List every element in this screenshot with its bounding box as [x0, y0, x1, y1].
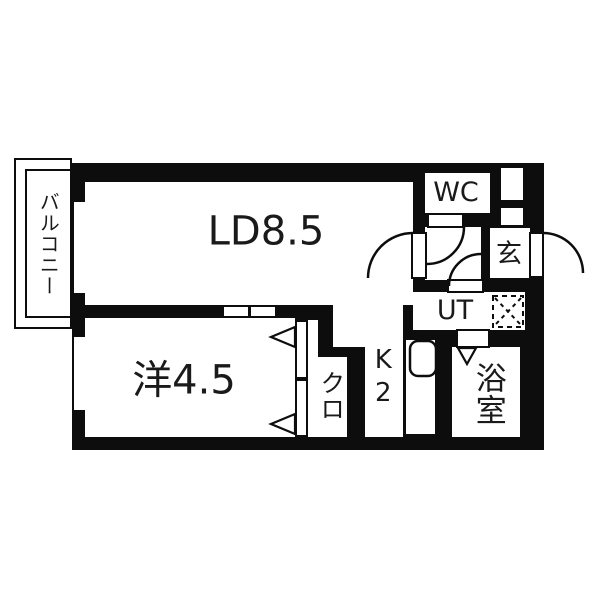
closet-arrow-top-icon — [271, 327, 295, 347]
toilet-door-swing-icon — [427, 227, 464, 264]
closet-label: クロ — [318, 370, 344, 422]
utility-door-swing-icon — [449, 254, 481, 286]
washing-machine-icon — [493, 296, 523, 327]
entrance-door-swing-icon — [543, 233, 583, 273]
kitchen-label: K2 — [370, 345, 397, 411]
floorplan-canvas: LD8.5 洋4.5 K2 クロ WC 玄 UT 浴室 バルコニー — [0, 0, 600, 600]
living-dining-label: LD8.5 — [208, 212, 325, 253]
utility-label: UT — [437, 297, 473, 325]
toilet-label: WC — [433, 179, 479, 207]
living-door-swing-icon — [368, 233, 413, 278]
symbols-layer — [0, 0, 600, 600]
kitchen-sink-icon — [410, 341, 436, 376]
entrance-label: 玄 — [496, 242, 522, 269]
bathroom-label: 浴室 — [471, 362, 503, 426]
western-room-label: 洋4.5 — [132, 361, 236, 402]
closet-arrow-bottom-icon — [271, 414, 295, 434]
balcony-label: バルコニー — [38, 192, 58, 297]
